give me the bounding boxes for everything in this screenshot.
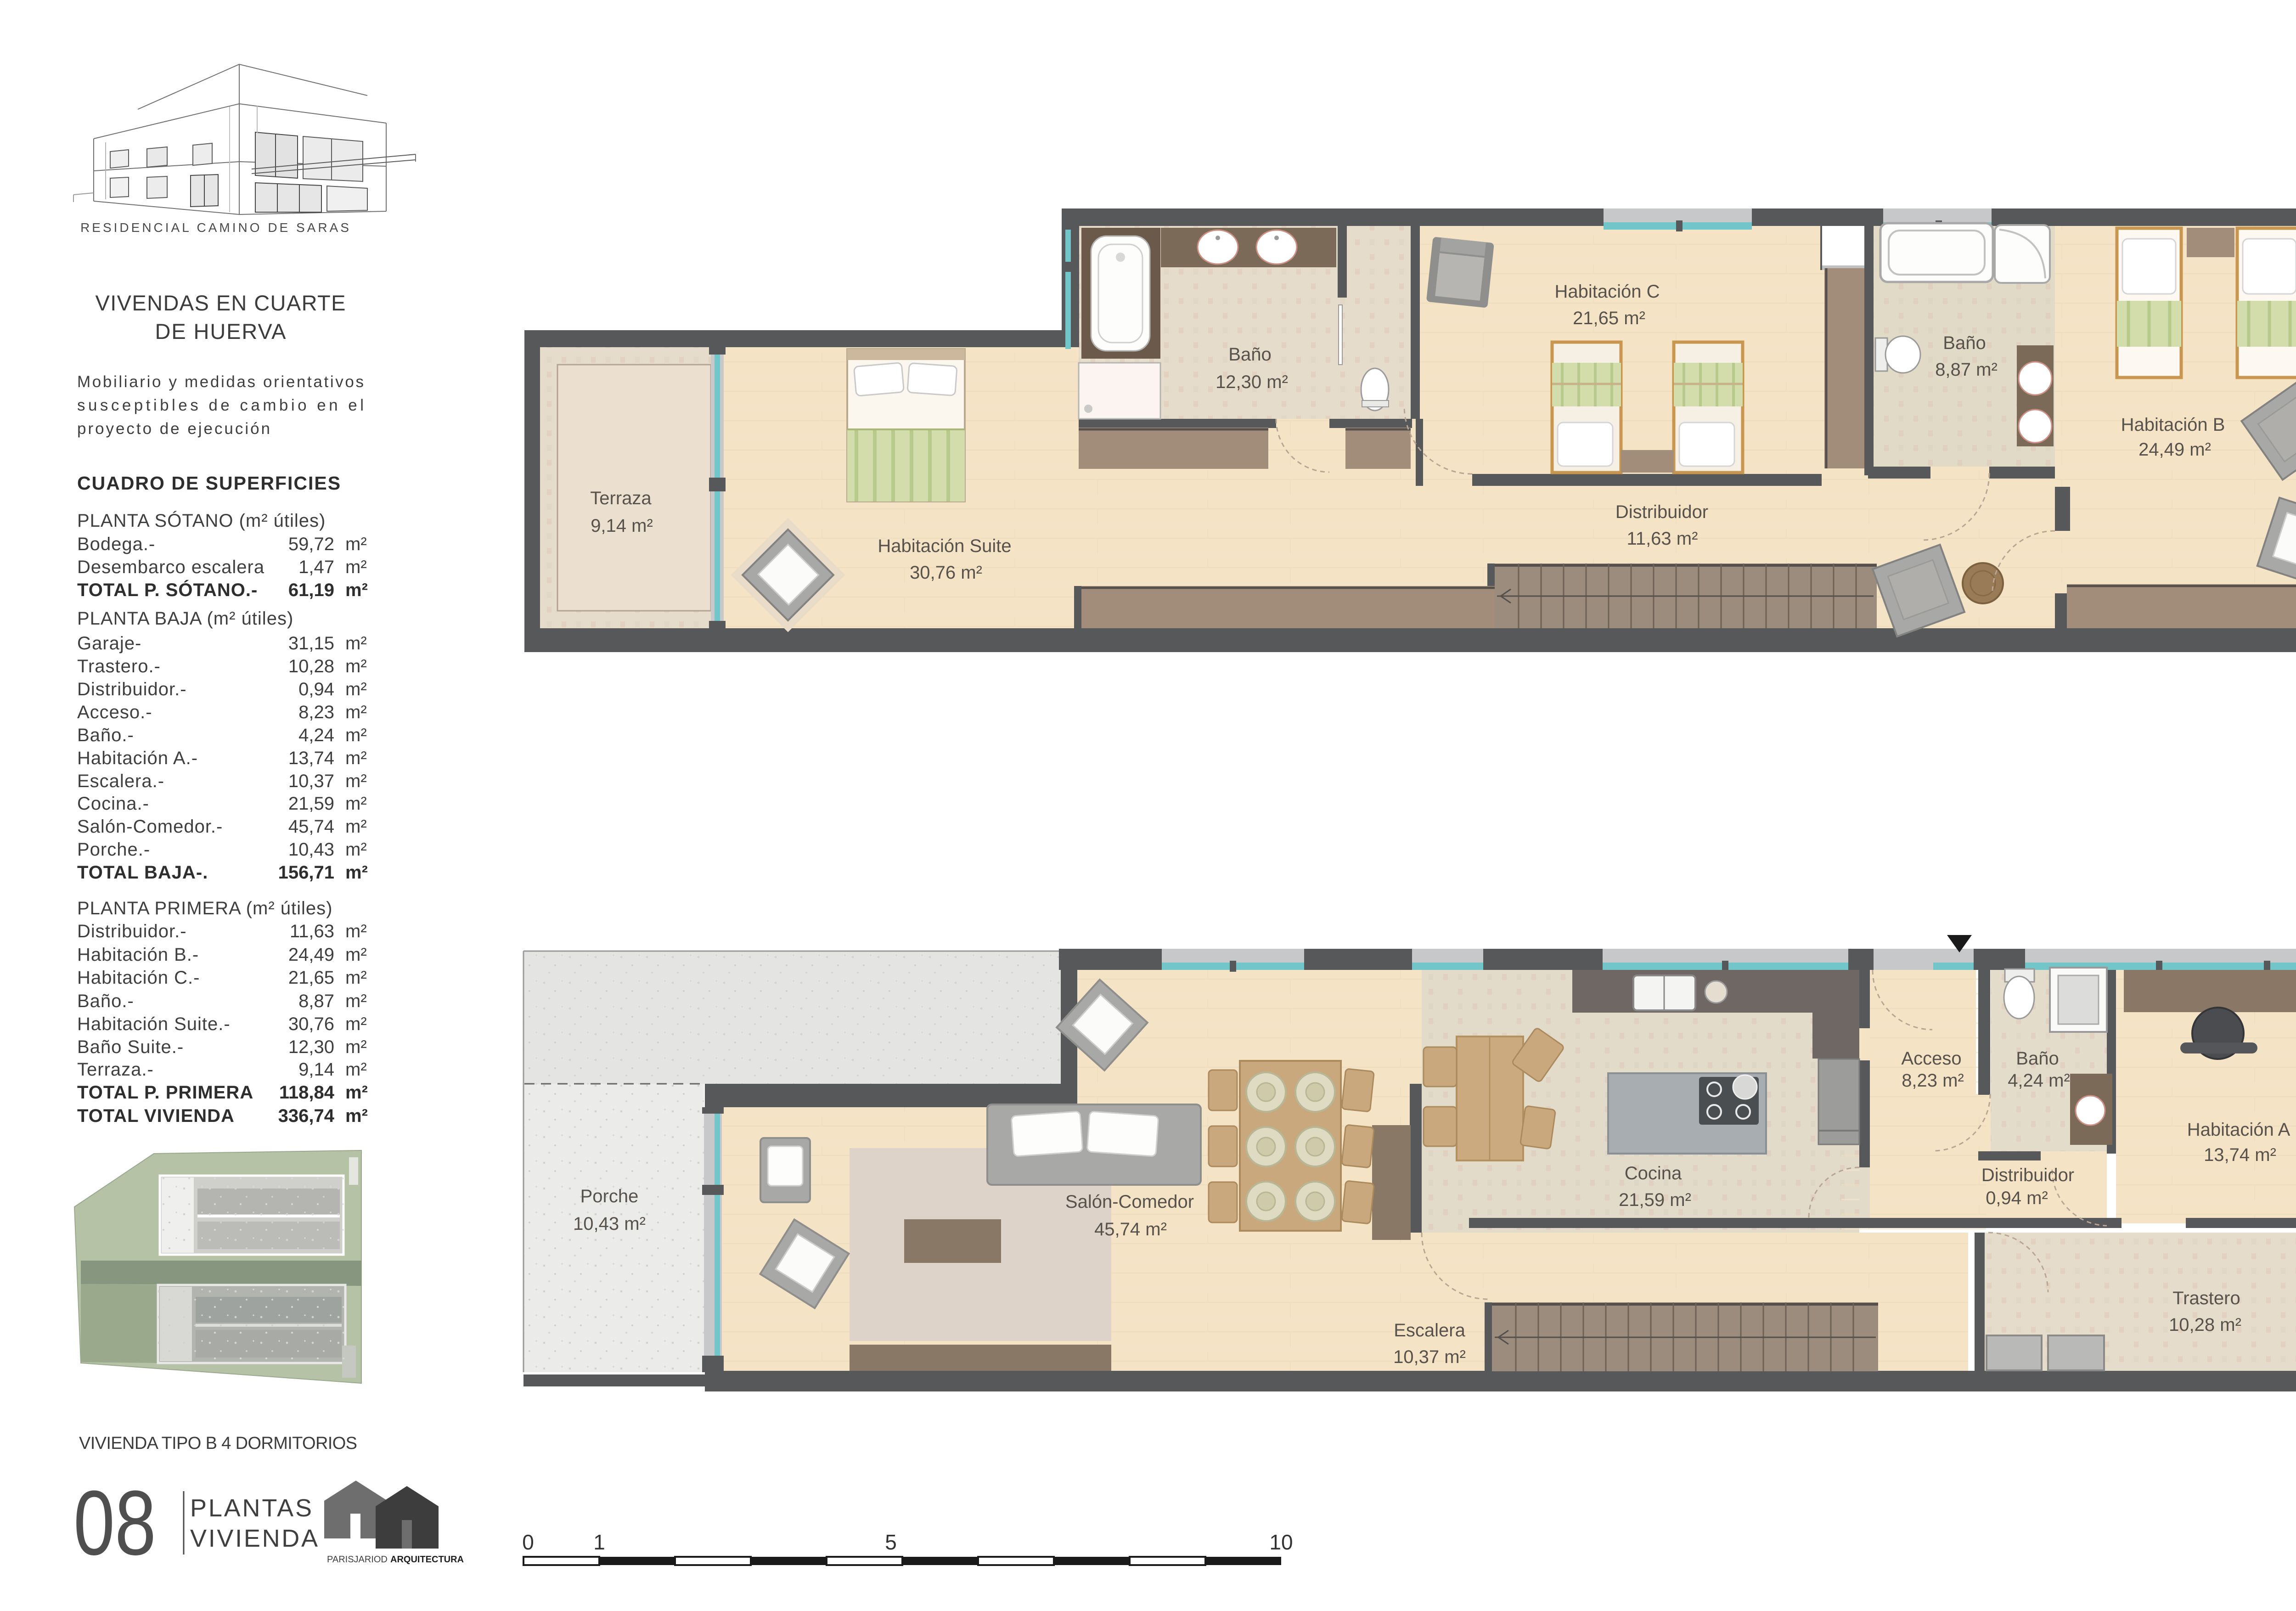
svg-text:10,28: 10,28	[288, 656, 334, 676]
svg-text:VIVIENDA TIPO B 4 DORMITORIOS: VIVIENDA TIPO B 4 DORMITORIOS	[79, 1434, 357, 1453]
svg-text:45,74: 45,74	[288, 817, 334, 837]
svg-text:m²: m²	[345, 921, 367, 941]
svg-text:Porche.-: Porche.-	[77, 839, 150, 860]
svg-text:m²: m²	[345, 862, 368, 883]
svg-text:PARISJARIOD: PARISJARIOD	[327, 1555, 388, 1565]
svg-text:10,37 m²: 10,37 m²	[1393, 1347, 1466, 1367]
svg-text:8,87 m²: 8,87 m²	[1935, 360, 1998, 380]
svg-text:30,76: 30,76	[288, 1014, 334, 1034]
svg-text:24,49 m²: 24,49 m²	[2138, 439, 2211, 460]
svg-text:Habitación Suite.-: Habitación Suite.-	[77, 1014, 231, 1034]
svg-text:Distribuidor: Distribuidor	[1615, 502, 1708, 522]
svg-text:Habitación B: Habitación B	[2121, 415, 2225, 435]
svg-text:m²: m²	[345, 557, 367, 577]
svg-text:RESIDENCIAL CAMINO DE SARAS: RESIDENCIAL CAMINO DE SARAS	[80, 220, 351, 235]
svg-text:Escalera.-: Escalera.-	[77, 771, 164, 791]
svg-text:8,23: 8,23	[298, 702, 334, 722]
svg-text:m²: m²	[345, 633, 367, 653]
svg-text:Habitación A: Habitación A	[2187, 1120, 2290, 1140]
svg-text:10,28 m²: 10,28 m²	[2169, 1315, 2241, 1335]
svg-text:118,84: 118,84	[279, 1082, 335, 1103]
svg-text:Terraza.-: Terraza.-	[77, 1059, 154, 1080]
svg-text:m²: m²	[345, 817, 367, 837]
svg-text:ARQUITECTURA: ARQUITECTURA	[390, 1555, 464, 1565]
svg-text:Habitación Suite: Habitación Suite	[878, 536, 1011, 556]
svg-text:Cocina.-: Cocina.-	[77, 794, 149, 814]
svg-text:24,49: 24,49	[288, 945, 334, 965]
svg-text:Habitación A.-: Habitación A.-	[77, 748, 198, 768]
svg-text:TOTAL P. PRIMERA: TOTAL P. PRIMERA	[77, 1082, 253, 1103]
svg-text:m²: m²	[345, 1059, 367, 1080]
svg-text:61,19: 61,19	[288, 580, 334, 600]
svg-text:CUADRO DE SUPERFICIES: CUADRO DE SUPERFICIES	[77, 473, 341, 494]
svg-text:m²: m²	[345, 748, 367, 768]
svg-text:10,43 m²: 10,43 m²	[573, 1214, 646, 1234]
svg-text:susceptibles de cambio en: susceptibles de cambio en el	[77, 396, 364, 414]
svg-text:TOTAL P. SÓTANO.-: TOTAL P. SÓTANO.-	[77, 579, 258, 600]
svg-text:21,59: 21,59	[288, 794, 334, 814]
svg-text:21,59 m²: 21,59 m²	[1619, 1190, 1691, 1210]
svg-text:Escalera: Escalera	[1394, 1320, 1465, 1341]
svg-text:Baño.-: Baño.-	[77, 991, 134, 1011]
svg-text:m²: m²	[345, 1037, 367, 1057]
svg-text:m²: m²	[345, 702, 367, 722]
svg-text:Baño Suite.-: Baño Suite.-	[77, 1037, 184, 1057]
svg-text:m²: m²	[345, 794, 367, 814]
svg-text:Distribuidor.-: Distribuidor.-	[77, 679, 187, 699]
svg-text:proyecto de ejecución: proyecto de ejecución	[77, 420, 270, 438]
svg-text:8,87: 8,87	[298, 991, 334, 1011]
svg-text:0,94: 0,94	[298, 679, 334, 699]
svg-text:m²: m²	[345, 580, 368, 600]
svg-text:Garaje-: Garaje-	[77, 633, 141, 653]
svg-text:Acceso.-: Acceso.-	[77, 702, 152, 722]
svg-text:DE HUERVA: DE HUERVA	[155, 319, 287, 344]
svg-text:m²: m²	[345, 725, 367, 745]
svg-text:10,37: 10,37	[288, 771, 334, 791]
svg-text:Trastero.-: Trastero.-	[77, 656, 161, 676]
svg-text:11,63 m²: 11,63 m²	[1627, 529, 1698, 549]
svg-text:m²: m²	[345, 771, 367, 791]
svg-text:08: 08	[73, 1472, 156, 1574]
svg-text:PLANTA BAJA (m² útiles): PLANTA BAJA (m² útiles)	[77, 608, 293, 629]
svg-text:m²: m²	[345, 945, 367, 965]
svg-text:30,76 m²: 30,76 m²	[910, 563, 982, 583]
svg-text:Desembarco escalera: Desembarco escalera	[77, 557, 264, 577]
svg-text:31,15: 31,15	[288, 633, 334, 653]
svg-text:4,24 m²: 4,24 m²	[2008, 1070, 2070, 1091]
svg-text:Trastero: Trastero	[2172, 1288, 2240, 1308]
svg-text:45,74 m²: 45,74 m²	[1094, 1219, 1167, 1239]
svg-text:Habitación B.-: Habitación B.-	[77, 945, 199, 965]
svg-text:Porche: Porche	[580, 1186, 639, 1206]
svg-text:m²: m²	[345, 679, 367, 699]
svg-text:11,63: 11,63	[290, 921, 334, 941]
svg-text:10: 10	[1269, 1530, 1293, 1554]
svg-text:PLANTAS: PLANTAS	[190, 1494, 312, 1522]
svg-text:m²: m²	[345, 534, 367, 554]
svg-text:1,47: 1,47	[298, 557, 334, 577]
svg-text:59,72: 59,72	[288, 534, 334, 554]
svg-text:21,65 m²: 21,65 m²	[1573, 308, 1645, 328]
svg-text:Salón-Comedor.-: Salón-Comedor.-	[77, 817, 223, 837]
svg-text:VIVENDAS EN CUARTE: VIVENDAS EN CUARTE	[96, 291, 346, 315]
svg-text:Acceso: Acceso	[1901, 1048, 1961, 1069]
svg-text:Mobiliario y medidas orientat: Mobiliario y medidas orientativos	[77, 373, 364, 391]
svg-text:Baño.-: Baño.-	[77, 725, 134, 745]
svg-text:0: 0	[522, 1530, 534, 1554]
svg-text:9,14: 9,14	[298, 1059, 334, 1080]
svg-text:m²: m²	[345, 839, 367, 860]
svg-text:Habitación C.-: Habitación C.-	[77, 968, 200, 988]
svg-text:Distribuidor.-: Distribuidor.-	[77, 921, 187, 941]
svg-text:1: 1	[593, 1530, 605, 1554]
svg-text:4,24: 4,24	[298, 725, 334, 745]
svg-text:Baño: Baño	[1943, 333, 1986, 353]
svg-text:Cocina: Cocina	[1625, 1163, 1682, 1183]
svg-text:Terraza: Terraza	[590, 488, 652, 508]
svg-text:13,74 m²: 13,74 m²	[2204, 1145, 2276, 1165]
svg-text:m²: m²	[345, 968, 367, 988]
svg-text:Baño: Baño	[2016, 1048, 2059, 1069]
svg-text:156,71: 156,71	[278, 862, 334, 883]
svg-text:Distribuidor: Distribuidor	[1981, 1165, 2074, 1185]
svg-text:m²: m²	[345, 991, 367, 1011]
svg-text:9,14 m²: 9,14 m²	[591, 516, 653, 536]
svg-text:13,74: 13,74	[288, 748, 334, 768]
svg-text:12,30: 12,30	[288, 1037, 334, 1057]
svg-text:m²: m²	[345, 1106, 368, 1126]
svg-text:Habitación C: Habitación C	[1554, 282, 1660, 302]
svg-text:m²: m²	[345, 1014, 367, 1034]
svg-text:12,30 m²: 12,30 m²	[1216, 372, 1288, 392]
svg-text:0,94 m²: 0,94 m²	[1986, 1188, 2048, 1208]
svg-text:Baño: Baño	[1228, 344, 1271, 365]
svg-text:TOTAL VIVIENDA: TOTAL VIVIENDA	[77, 1106, 235, 1126]
svg-text:VIVIENDA: VIVIENDA	[190, 1525, 318, 1552]
svg-text:m²: m²	[345, 656, 367, 676]
svg-text:336,74: 336,74	[278, 1106, 335, 1126]
svg-text:8,23 m²: 8,23 m²	[1902, 1070, 1964, 1091]
svg-text:Salón-Comedor: Salón-Comedor	[1065, 1192, 1194, 1212]
svg-text:10,43: 10,43	[288, 839, 334, 860]
svg-text:5: 5	[885, 1530, 897, 1554]
svg-text:m²: m²	[345, 1082, 368, 1103]
svg-text:TOTAL BAJA-.: TOTAL BAJA-.	[77, 862, 208, 883]
svg-text:21,65: 21,65	[288, 968, 334, 988]
svg-text:PLANTA PRIMERA (m² útiles): PLANTA PRIMERA (m² útiles)	[77, 898, 332, 918]
svg-text:Bodega.-: Bodega.-	[77, 534, 155, 554]
svg-text:PLANTA SÓTANO (m² útiles): PLANTA SÓTANO (m² útiles)	[77, 510, 326, 531]
